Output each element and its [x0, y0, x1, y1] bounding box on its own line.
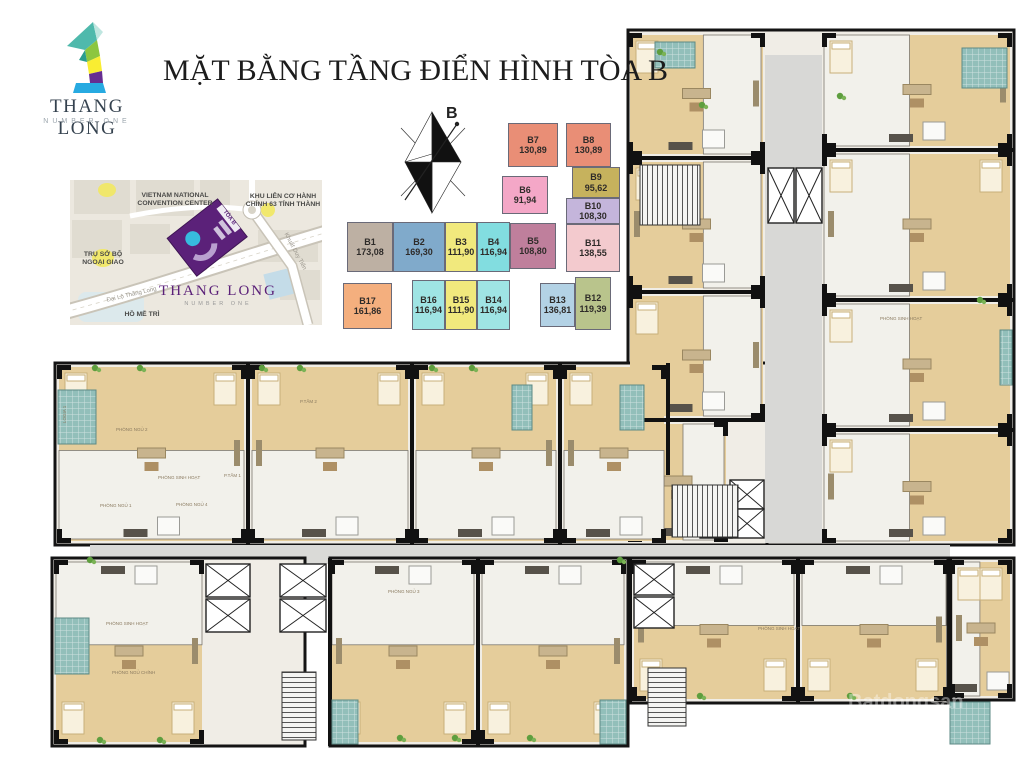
map-label-admin1: KHU LIÊN CƠ HÀNH	[250, 191, 316, 200]
legend-unit-b2: B2169,30	[393, 222, 445, 272]
legend-unit-b6: B691,94	[502, 176, 548, 214]
compass-icon	[395, 100, 475, 220]
legend-unit-b13: B13136,81	[540, 283, 575, 327]
room-label: PHÒNG NGỦ 4	[176, 501, 208, 507]
legend-unit-b4: B4116,94	[477, 222, 510, 272]
page-title: MẶT BẰNG TẦNG ĐIỂN HÌNH TÒA B	[163, 54, 633, 88]
room-label: P.TẮM 1	[224, 471, 241, 478]
map-label-convention1: VIETNAM NATIONAL	[141, 192, 208, 199]
legend-unit-b3: B3111,90	[445, 222, 477, 272]
map-label-ministry2: NGOẠI GIAO	[82, 259, 124, 266]
legend-unit-b16: B16116,94	[412, 280, 445, 330]
legend-unit-b11: B11138,55	[566, 224, 620, 272]
floor-plan: PHÒNG SINH HOẠT PHÒNG NGỦ 2 PHÒNG NGỦ 1 …	[0, 0, 1024, 768]
room-label: LOGIA 1	[62, 405, 67, 423]
legend-unit-b9: B995,62	[572, 167, 620, 198]
room-label: PHÒNG NGỦ 1	[100, 502, 132, 508]
room-label: PHÒNG SINH HOẠT	[158, 474, 201, 480]
legend-unit-b17: B17161,86	[343, 283, 392, 329]
legend-unit-b1: B1173,08	[347, 222, 393, 272]
legend-unit-b14: B14116,94	[477, 280, 510, 330]
room-label: PHÒNG SINH HOẠT	[758, 625, 801, 631]
floorplan-page: PHÒNG SINH HOẠT PHÒNG NGỦ 2 PHÒNG NGỦ 1 …	[0, 0, 1024, 768]
location-map: TÒA B VIETNAM NATIONAL CONVENTION CENTER…	[70, 180, 322, 325]
legend-unit-b7: B7130,89	[508, 123, 558, 167]
map-label-admin2: CHÍNH 63 TỈNH THÀNH	[246, 199, 320, 208]
legend-unit-b12: B12119,39	[575, 277, 611, 330]
compass-label: B	[446, 105, 458, 123]
logo-numeral-icon	[52, 22, 122, 94]
map-project-subtitle: NUMBER ONE	[184, 301, 251, 307]
logo-subtitle: NUMBER ONE	[22, 118, 152, 125]
room-label: PHÒNG SINH HOẠT	[880, 315, 923, 321]
legend-unit-b15: B15111,90	[445, 280, 477, 330]
legend-unit-b8: B8130,89	[566, 123, 611, 167]
room-label: P.TẮM 2	[300, 397, 317, 404]
legend-unit-b5: B5108,80	[510, 223, 556, 269]
room-label: PHÒNG NGỦ CHÍNH	[112, 669, 155, 675]
legend-unit-b10: B10108,30	[566, 198, 620, 224]
room-label: PHÒNG NGỦ 3	[388, 588, 420, 594]
map-label-ministry1: TRỤ SỞ BỘ	[84, 249, 122, 258]
map-label-convention2: CONVENTION CENTER	[137, 200, 212, 207]
map-project-name: THANG LONG	[159, 283, 277, 299]
brand-logo: THANG LONG NUMBER ONE	[22, 22, 152, 126]
watermark: Batdongsan	[848, 691, 964, 713]
room-label: PHÒNG NGỦ 2	[116, 426, 148, 432]
room-label: PHÒNG SINH HOẠT	[106, 620, 149, 626]
